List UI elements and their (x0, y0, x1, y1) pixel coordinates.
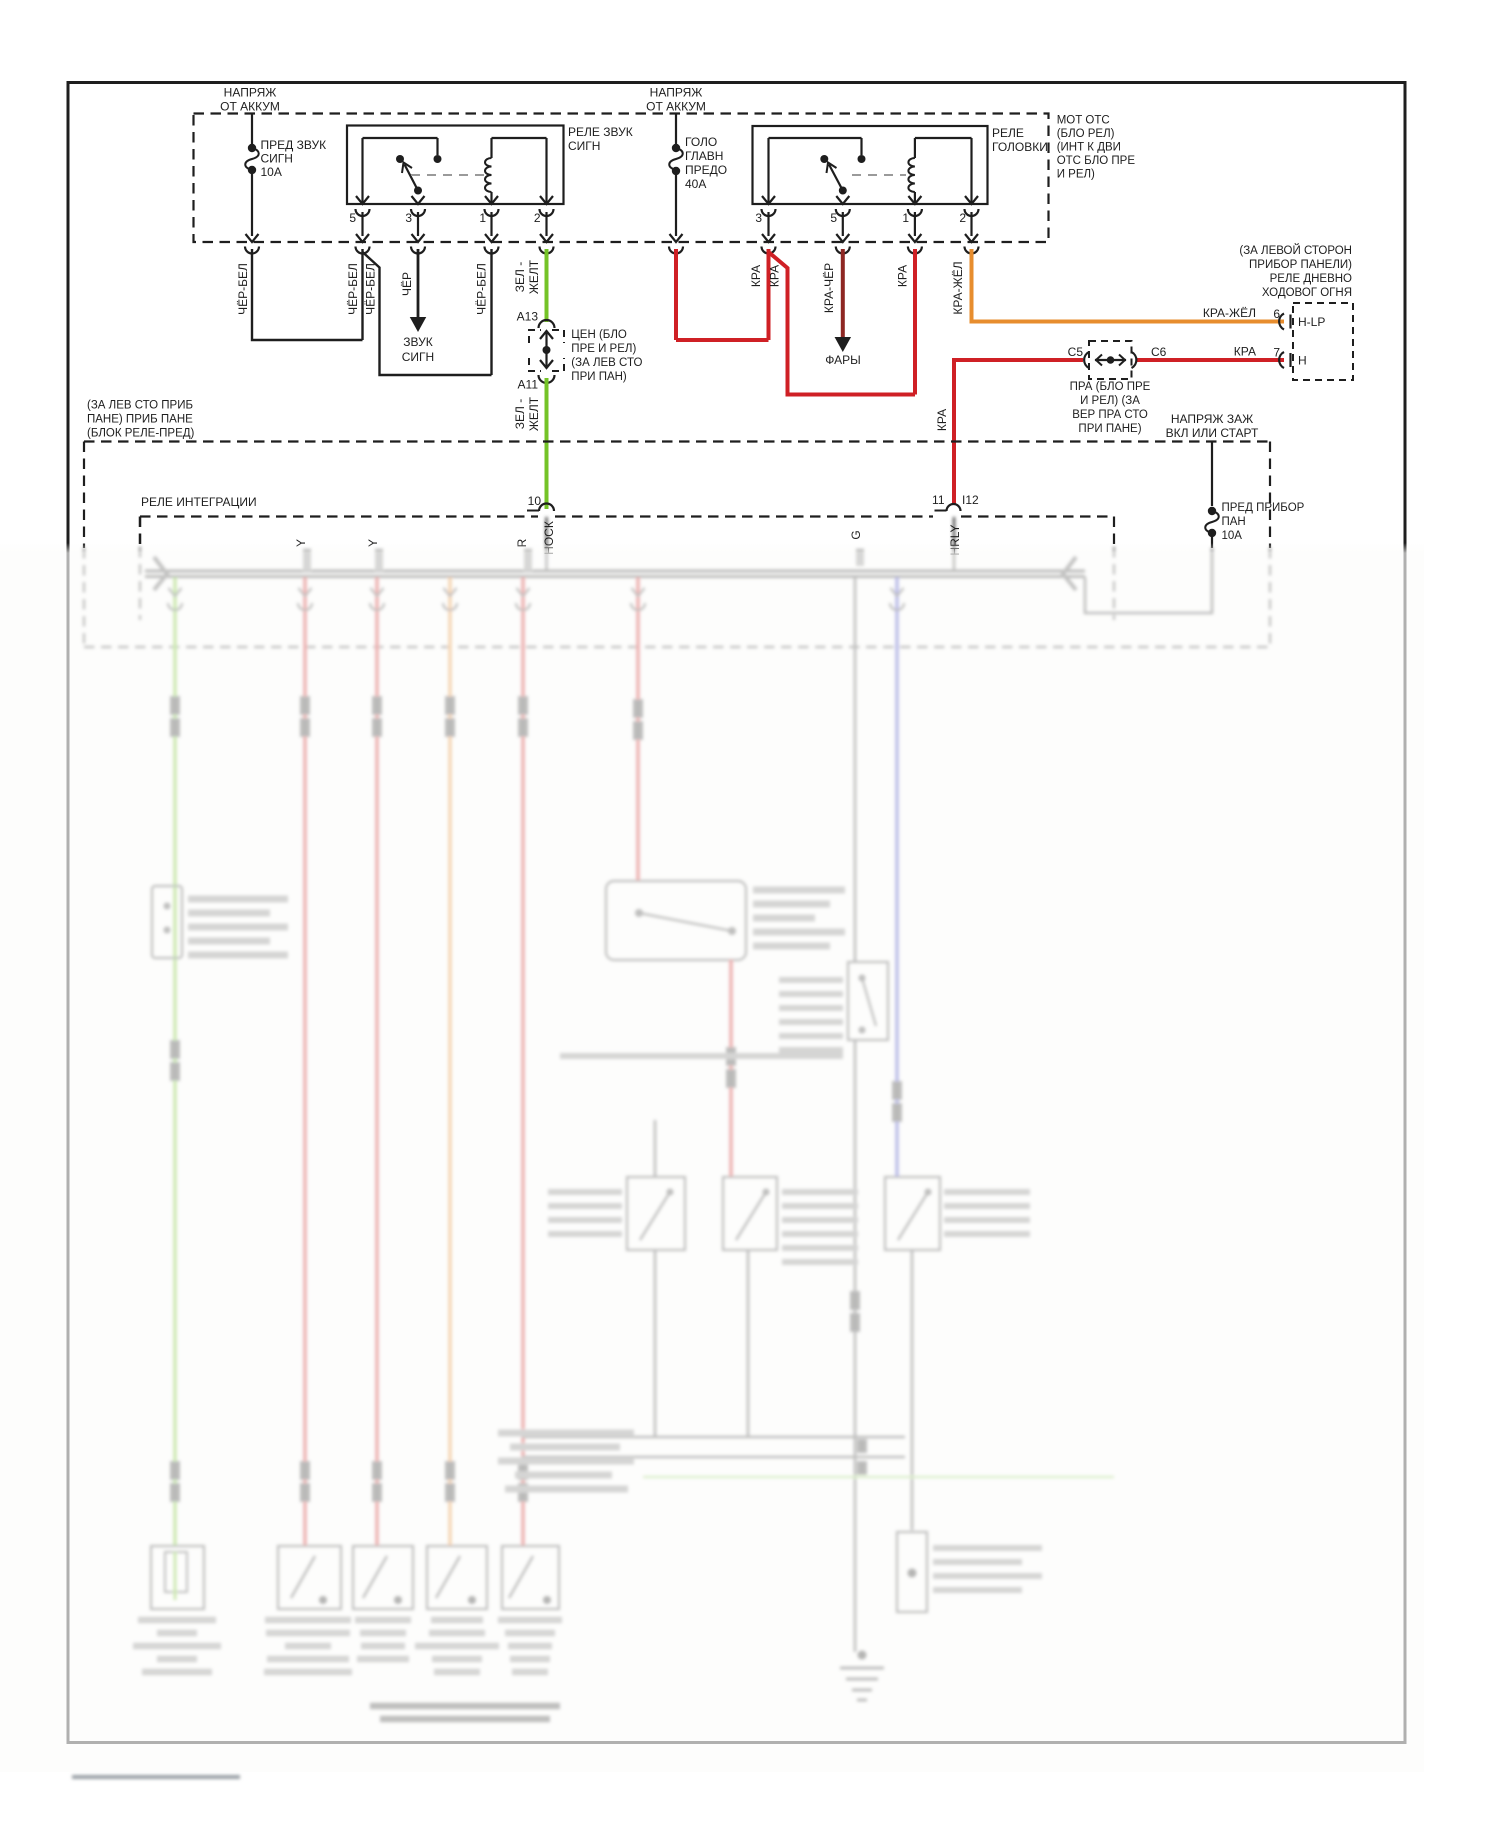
svg-text:КРА: КРА (896, 265, 910, 287)
svg-text:(БЛОК РЕЛЕ-ПРЕД): (БЛОК РЕЛЕ-ПРЕД) (87, 428, 195, 440)
svg-text:ПРЕ И РЕЛ): ПРЕ И РЕЛ) (571, 343, 636, 355)
svg-text:ЧЁР-БЕЛ: ЧЁР-БЕЛ (364, 263, 378, 315)
svg-text:И РЕЛ): И РЕЛ) (1057, 169, 1095, 181)
svg-text:ЦЕН (БЛО: ЦЕН (БЛО (571, 329, 627, 341)
svg-text:ЧЁР-БЕЛ: ЧЁР-БЕЛ (475, 263, 489, 315)
svg-text:РЕЛЕ: РЕЛЕ (992, 126, 1024, 140)
svg-text:СИГН: СИГН (568, 139, 600, 153)
svg-text:РЕЛЕ ИНТЕГРАЦИИ: РЕЛЕ ИНТЕГРАЦИИ (141, 495, 257, 509)
svg-text:ПАНЕ) ПРИБ ПАНЕ: ПАНЕ) ПРИБ ПАНЕ (87, 414, 193, 426)
svg-text:ГОЛОВКИ: ГОЛОВКИ (992, 140, 1048, 154)
svg-text:ЖЕЛТ: ЖЕЛТ (527, 259, 541, 294)
svg-text:2: 2 (534, 211, 541, 225)
svg-text:(ЗА ЛЕВОЙ СТОРОН: (ЗА ЛЕВОЙ СТОРОН (1239, 244, 1352, 257)
svg-text:ПРИ ПАНЕ): ПРИ ПАНЕ) (1078, 423, 1141, 435)
svg-text:5: 5 (349, 211, 356, 225)
svg-text:C5: C5 (1068, 345, 1084, 359)
svg-text:6: 6 (1273, 307, 1280, 321)
svg-text:(ЗА ЛЕВ СТО ПРИБ: (ЗА ЛЕВ СТО ПРИБ (87, 400, 193, 412)
svg-text:5: 5 (830, 211, 837, 225)
svg-text:ЗВУК: ЗВУК (403, 335, 432, 349)
svg-text:ОТ АККУМ: ОТ АККУМ (220, 100, 280, 114)
svg-text:РЕЛЕ ДНЕВНО: РЕЛЕ ДНЕВНО (1270, 273, 1352, 285)
svg-text:НАПРЯЖ: НАПРЯЖ (224, 86, 277, 100)
svg-text:10А: 10А (261, 165, 282, 179)
svg-text:3: 3 (755, 211, 762, 225)
svg-text:ОТ АККУМ: ОТ АККУМ (646, 100, 706, 114)
svg-text:ФАРЫ: ФАРЫ (825, 353, 861, 367)
svg-text:НАПРЯЖ: НАПРЯЖ (650, 86, 703, 100)
svg-text:КРА-ЖЁЛ: КРА-ЖЁЛ (1203, 306, 1256, 320)
svg-text:1: 1 (479, 211, 486, 225)
svg-text:ПАН: ПАН (1222, 516, 1246, 528)
svg-text:И РЕЛ) (ЗА: И РЕЛ) (ЗА (1080, 395, 1140, 407)
svg-text:ЧЁР-БЕЛ: ЧЁР-БЕЛ (346, 263, 360, 315)
svg-text:1: 1 (902, 211, 909, 225)
svg-text:ЖЕЛТ: ЖЕЛТ (527, 396, 541, 431)
svg-text:40А: 40А (685, 177, 706, 191)
svg-text:ЗЕЛ -: ЗЕЛ - (513, 262, 527, 292)
svg-text:ГОЛО: ГОЛО (685, 135, 717, 149)
svg-text:ЧЁР-БЕЛ: ЧЁР-БЕЛ (236, 263, 250, 315)
svg-text:A11: A11 (518, 378, 539, 392)
svg-text:КРА: КРА (768, 265, 782, 287)
svg-text:ПРИБОР ПАНЕЛИ): ПРИБОР ПАНЕЛИ) (1249, 259, 1352, 271)
svg-text:ОТС БЛО ПРЕ: ОТС БЛО ПРЕ (1057, 155, 1136, 167)
svg-text:МОТ ОТС: МОТ ОТС (1057, 115, 1110, 127)
svg-text:ВЕР ПРА СТО: ВЕР ПРА СТО (1072, 409, 1148, 421)
svg-text:ПРЕД ПРИБОР: ПРЕД ПРИБОР (1222, 502, 1305, 514)
svg-text:РЕЛЕ ЗВУК: РЕЛЕ ЗВУК (568, 125, 633, 139)
svg-text:G: G (849, 530, 863, 539)
svg-text:I12: I12 (962, 493, 979, 507)
svg-text:ПРИ ПАН): ПРИ ПАН) (571, 371, 627, 383)
svg-text:7: 7 (1273, 346, 1280, 360)
svg-text:ГЛАВН: ГЛАВН (685, 149, 723, 163)
svg-text:11: 11 (932, 493, 945, 507)
svg-text:10: 10 (528, 494, 542, 508)
svg-text:A13: A13 (517, 310, 539, 324)
svg-text:СИГН: СИГН (402, 350, 434, 364)
svg-text:(БЛО РЕЛ): (БЛО РЕЛ) (1057, 128, 1115, 140)
svg-text:ЧЁР: ЧЁР (400, 272, 414, 296)
svg-text:(ЗА ЛЕВ СТО: (ЗА ЛЕВ СТО (571, 357, 642, 369)
svg-text:ПРА (БЛО ПРЕ: ПРА (БЛО ПРЕ (1070, 381, 1151, 393)
svg-text:H-LP: H-LP (1298, 315, 1325, 329)
svg-text:КРА-ЖЁЛ: КРА-ЖЁЛ (951, 261, 965, 314)
svg-text:НАПРЯЖ ЗАЖ: НАПРЯЖ ЗАЖ (1171, 412, 1253, 426)
svg-text:ПРЕД ЗВУК: ПРЕД ЗВУК (261, 138, 327, 152)
svg-text:ПРЕДО: ПРЕДО (685, 163, 727, 177)
svg-text:3: 3 (405, 211, 412, 225)
svg-text:КРА: КРА (749, 265, 763, 287)
svg-text:ЗЕЛ -: ЗЕЛ - (513, 399, 527, 429)
svg-text:СИГН: СИГН (261, 152, 293, 166)
svg-text:КРА-ЧЁР: КРА-ЧЁР (822, 263, 836, 313)
svg-text:C6: C6 (1151, 345, 1167, 359)
svg-text:(ИНТ К ДВИ: (ИНТ К ДВИ (1057, 142, 1121, 154)
svg-text:ХОДОВОГ ОГНЯ: ХОДОВОГ ОГНЯ (1262, 287, 1352, 299)
svg-text:ВКЛ ИЛИ СТАРТ: ВКЛ ИЛИ СТАРТ (1166, 426, 1259, 440)
svg-text:10А: 10А (1222, 530, 1243, 542)
svg-text:КРА: КРА (1234, 345, 1256, 359)
svg-text:H: H (1298, 354, 1307, 368)
svg-text:КРА: КРА (935, 409, 949, 431)
svg-text:2: 2 (959, 211, 966, 225)
